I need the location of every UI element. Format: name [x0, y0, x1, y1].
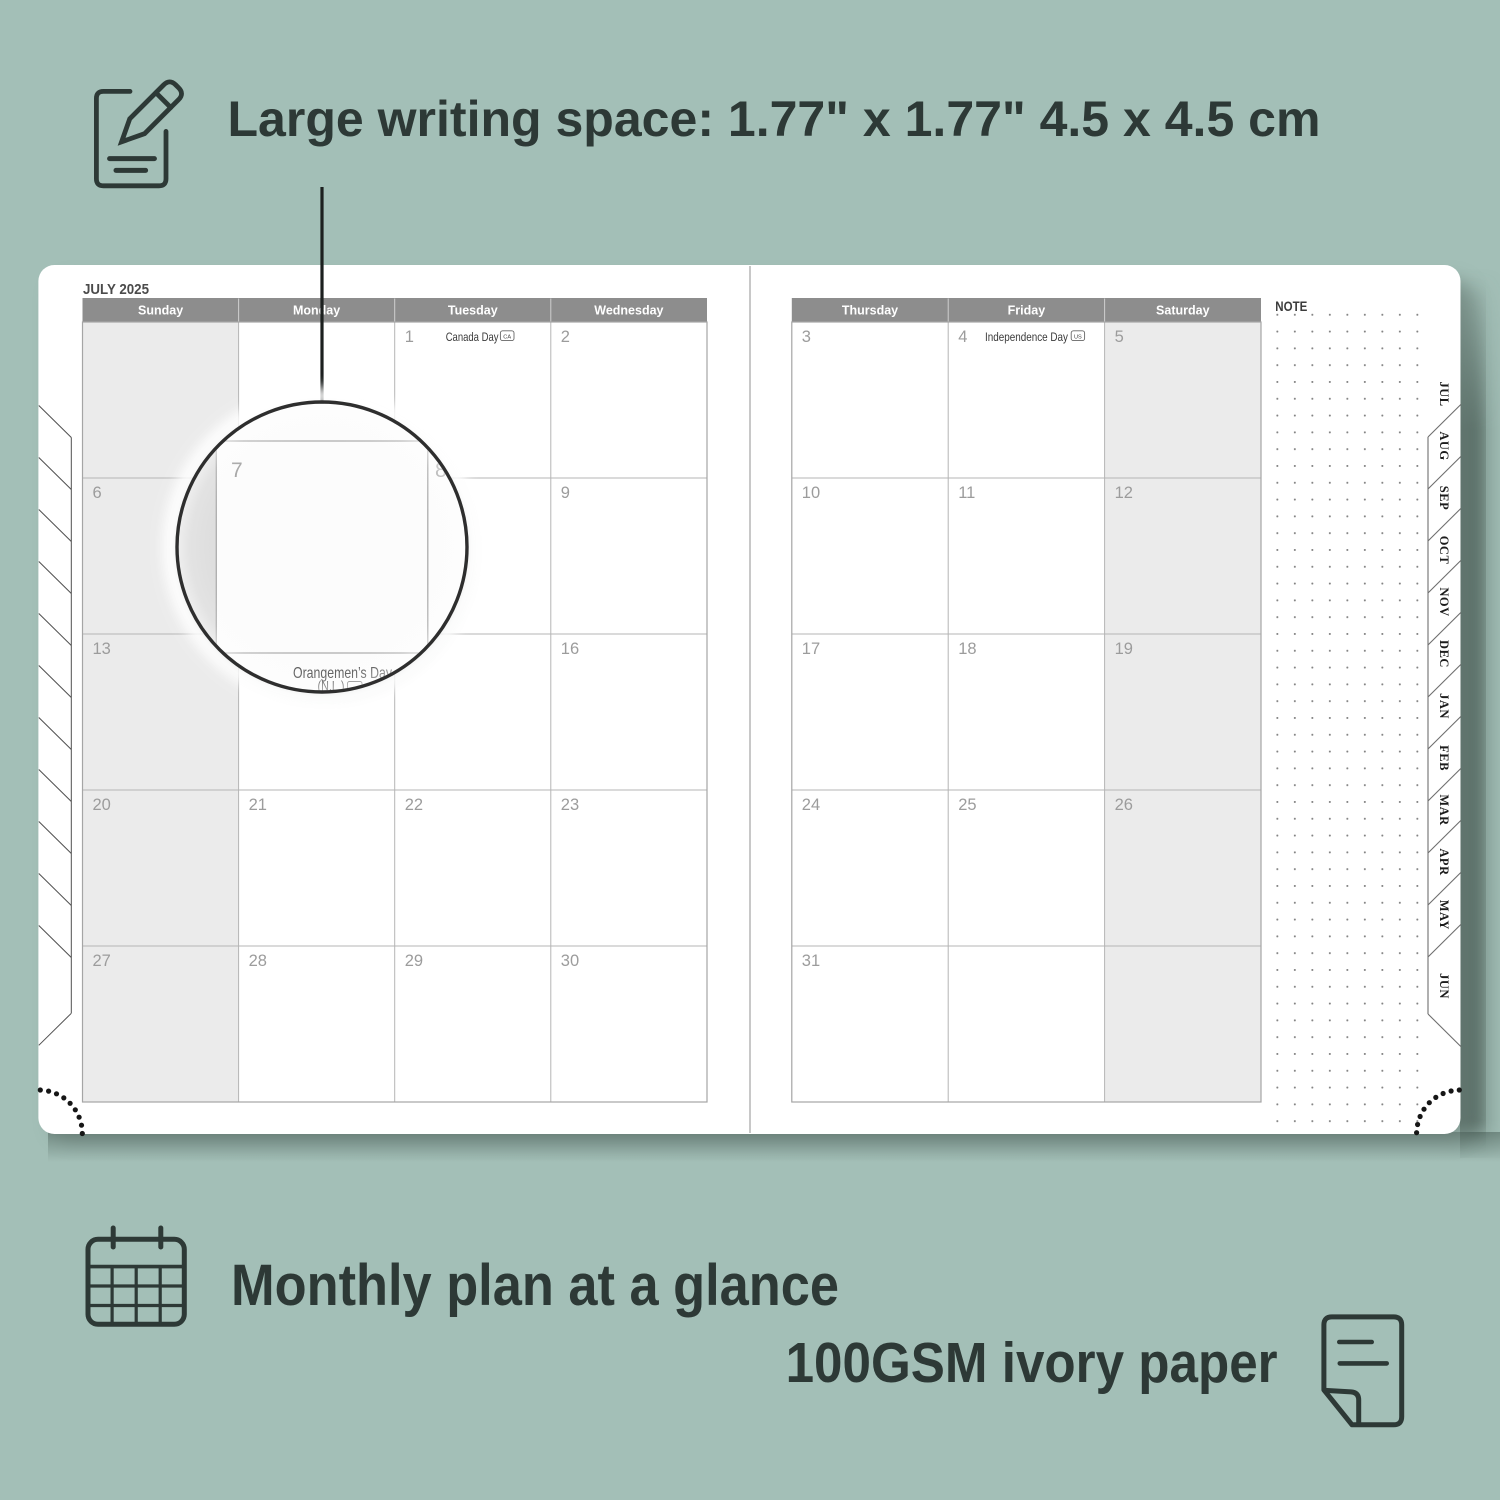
- svg-text:18: 18: [958, 640, 976, 658]
- svg-text:SEP: SEP: [1437, 486, 1451, 510]
- svg-text:JUN: JUN: [1437, 973, 1451, 999]
- svg-text:21: 21: [249, 796, 267, 814]
- svg-text:Monday: Monday: [293, 304, 340, 318]
- svg-text:JAN: JAN: [1437, 693, 1451, 719]
- svg-text:13: 13: [93, 640, 111, 658]
- svg-text:2: 2: [561, 328, 570, 346]
- svg-text:DEC: DEC: [1437, 640, 1451, 668]
- svg-text:10: 10: [802, 484, 820, 502]
- svg-text:29: 29: [405, 952, 423, 970]
- svg-text:US: US: [1074, 334, 1082, 340]
- svg-text:30: 30: [561, 952, 579, 970]
- svg-text:Saturday: Saturday: [1156, 304, 1210, 318]
- svg-text:25: 25: [958, 796, 976, 814]
- svg-text:FEB: FEB: [1437, 745, 1451, 771]
- svg-text:MAR: MAR: [1437, 794, 1451, 826]
- svg-text:19: 19: [1115, 640, 1133, 658]
- svg-text:Sunday: Sunday: [138, 304, 183, 318]
- svg-text:26: 26: [1115, 796, 1133, 814]
- svg-text:22: 22: [405, 796, 423, 814]
- svg-text:JULY 2025: JULY 2025: [83, 282, 149, 298]
- svg-text:6: 6: [93, 484, 102, 502]
- svg-text:Monthly plan at a glance: Monthly plan at a glance: [231, 1253, 839, 1318]
- svg-text:3: 3: [802, 328, 811, 346]
- svg-text:Tuesday: Tuesday: [448, 304, 498, 318]
- svg-text:Independence Day: Independence Day: [985, 330, 1069, 344]
- svg-text:CA: CA: [503, 334, 511, 340]
- svg-text:31: 31: [802, 952, 820, 970]
- svg-text:Large writing space: 1.77" x 1: Large writing space: 1.77" x 1.77" 4.5 x…: [228, 91, 1321, 147]
- svg-text:27: 27: [93, 952, 111, 970]
- svg-text:1: 1: [405, 328, 414, 346]
- svg-text:23: 23: [561, 796, 579, 814]
- svg-text:Canada Day: Canada Day: [446, 330, 499, 344]
- svg-text:12: 12: [1115, 484, 1133, 502]
- svg-text:Thursday: Thursday: [842, 304, 898, 318]
- svg-text:24: 24: [802, 796, 820, 814]
- svg-text:OCT: OCT: [1437, 536, 1451, 565]
- svg-text:APR: APR: [1437, 848, 1451, 876]
- svg-text:4: 4: [958, 328, 967, 346]
- svg-text:20: 20: [93, 796, 111, 814]
- svg-text:11: 11: [958, 484, 975, 502]
- svg-text:NOV: NOV: [1437, 587, 1451, 616]
- svg-text:AUG: AUG: [1437, 431, 1451, 460]
- svg-text:Wednesday: Wednesday: [594, 304, 663, 318]
- svg-text:Friday: Friday: [1008, 304, 1046, 318]
- svg-text:5: 5: [1115, 328, 1124, 346]
- svg-text:100GSM ivory paper: 100GSM ivory paper: [786, 1331, 1278, 1395]
- svg-text:MAY: MAY: [1437, 900, 1451, 930]
- svg-text:28: 28: [249, 952, 267, 970]
- svg-text:16: 16: [561, 640, 579, 658]
- svg-text:NOTE: NOTE: [1275, 299, 1307, 314]
- svg-text:9: 9: [561, 484, 570, 502]
- svg-text:JUL: JUL: [1437, 381, 1451, 406]
- svg-text:17: 17: [802, 640, 820, 658]
